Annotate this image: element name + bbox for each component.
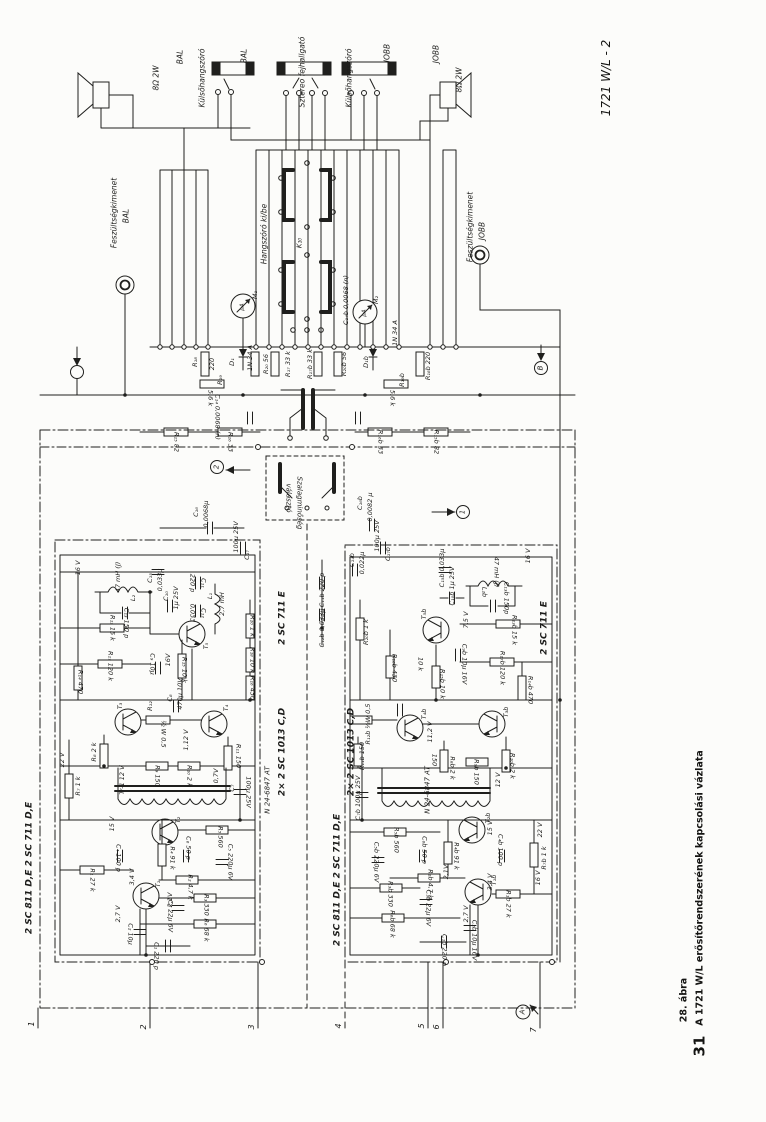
schematic-label: 2,7 mH xyxy=(219,592,226,616)
page-header-code: 1721 W/L - 2 xyxy=(600,40,614,117)
schematic-label: D₁ xyxy=(229,358,236,366)
schematic-label: C₄ 100 p xyxy=(115,844,122,872)
schematic-label: C₁₀b 1μ 25V xyxy=(449,567,456,606)
schematic-label: C₁₀ xyxy=(163,591,170,601)
schematic-label: R₁₂ xyxy=(147,701,154,711)
schematic-label: 1μ 25V xyxy=(173,586,180,609)
schematic-label: C₃b 22μ 6V xyxy=(425,890,432,926)
schematic-label: R₂₀ 56 xyxy=(263,354,270,374)
schematic-label: 2 SC 811 D,E 2 SC 711 D,E xyxy=(334,814,343,946)
schematic-label: 15 V xyxy=(109,817,116,832)
schematic-label: R₁₁ 150 xyxy=(235,744,242,768)
schematic-label: R₃b 330 xyxy=(387,881,394,907)
schematic-label: 22 V xyxy=(59,753,66,768)
schematic-label: C₈ xyxy=(167,694,174,701)
schematic-label: Feszültségkimenet xyxy=(110,178,118,249)
schematic-label: C₆ 50 p xyxy=(185,836,192,860)
schematic-label: 3,4 V xyxy=(129,869,136,886)
schematic-label: Feszültségkimenet xyxy=(466,192,474,263)
schematic-label: C₁₆ xyxy=(193,507,200,517)
schematic-label: R₉ 150 xyxy=(154,765,161,787)
schematic-label: C₁₄b xyxy=(349,553,356,567)
schematic-label: 47 mH (J) xyxy=(493,557,500,588)
schematic-label: C₅ 220μ 6V xyxy=(227,844,234,880)
schematic-label: C₅b 220μ 6V xyxy=(373,842,380,883)
schematic-label: R₁ 27 k xyxy=(89,868,96,891)
schematic-label: T₂ xyxy=(175,817,182,824)
schematic-label: R₁₅b 82 xyxy=(433,430,440,454)
schematic-label: R₈ 2 k xyxy=(91,742,98,761)
schematic-label: Sztereo fejhallgató xyxy=(298,37,306,108)
schematic-label: D₁b xyxy=(363,356,370,368)
schematic-label: L₁ xyxy=(207,593,214,599)
schematic-label: 11,2 V xyxy=(427,722,434,743)
schematic-label: 5,6 k xyxy=(389,390,396,406)
scanned-schematic-page: 8Ω 2WBALKülsőhangszóróBALSztereo fejhall… xyxy=(0,0,766,1122)
schematic-label: 8Ω 2W xyxy=(455,67,463,92)
schematic-label: R₁₃b 15 k xyxy=(511,615,518,645)
schematic-label: 12 V xyxy=(495,773,502,788)
schematic-label: R₂₀b 56 xyxy=(341,352,348,376)
schematic-label: 22 V xyxy=(537,823,544,838)
schematic-label: T₅b xyxy=(421,609,428,620)
schematic-label: 1,12 V xyxy=(183,730,190,751)
schematic-label: R₂₀b 1 k xyxy=(363,619,370,645)
schematic-label: BAL xyxy=(240,49,248,63)
figure-caption-text: A 1721 W/L erősítőrendszerének kapcsolás… xyxy=(696,750,707,1026)
schematic-label: R₁₈ 10 k xyxy=(249,647,256,673)
schematic-label: C₁₄ 0,0068 (n) xyxy=(214,394,221,440)
schematic-label: 16 V xyxy=(535,871,542,886)
schematic-label: 2 xyxy=(214,465,221,469)
schematic-label: JOBB xyxy=(383,44,391,62)
schematic-label: C₁₁ xyxy=(200,578,207,588)
schematic-label: 1N 34 A xyxy=(392,320,399,346)
schematic-label: BAL xyxy=(176,50,184,64)
schematic-label: 2 SC 711 E xyxy=(541,601,550,655)
schematic-label: Külsőhangszóró xyxy=(345,48,353,107)
schematic-label: R₃ 330 xyxy=(203,894,210,916)
schematic-label: R₄ 91 k xyxy=(169,846,176,869)
schematic-label: C₆b 50 p xyxy=(421,836,428,864)
schematic-label: C₁₂ xyxy=(200,608,207,618)
schematic-label: C₁₃b 150p xyxy=(503,582,510,614)
schematic-label: R₁₇ 33 k xyxy=(285,351,292,377)
schematic-label: R₁₂b ½W 0,5 xyxy=(365,703,372,744)
schematic-label: C₁₇ xyxy=(244,550,251,560)
schematic-label: R₁₈b 430 xyxy=(391,654,398,682)
schematic-label: C₁₄b 0,0068 (n) xyxy=(343,275,350,325)
schematic-label: T₅ xyxy=(203,643,210,650)
schematic-label: R₆ 68 k xyxy=(203,918,210,941)
schematic-label: 0,7V xyxy=(213,769,220,784)
schematic-label: R₅b 560 xyxy=(393,827,400,853)
schematic-label: 1N 34 A xyxy=(247,345,254,371)
schematic-label: C₁₇b xyxy=(385,547,392,561)
schematic-label: Hangszóró ki/be xyxy=(260,204,268,265)
schematic-label: R₁₅b 10 k xyxy=(439,669,446,699)
schematic-label: T₂b xyxy=(485,813,492,824)
schematic-label: C₃ 22μ 6V xyxy=(167,900,174,932)
schematic-label: 1 xyxy=(460,510,467,514)
schematic-label: R₁₉ xyxy=(217,375,224,385)
schematic-label: M₁ xyxy=(252,291,259,299)
schematic-label: BAL xyxy=(122,209,130,223)
schematic-label: R₁₃ 15 k xyxy=(109,615,116,641)
schematic-label: 100μ 25V xyxy=(245,776,252,807)
schematic-label: L₂b xyxy=(481,587,488,597)
schematic-label: 1 xyxy=(28,1021,36,1026)
schematic-label: C₁₂b 0,033μ xyxy=(319,609,326,648)
schematic-label: C₂b 10μ 16V xyxy=(471,920,478,961)
schematic-label: C₁₆b xyxy=(357,496,364,510)
schematic-label: N 24-6847 AT xyxy=(425,766,432,814)
schematic-label: 8Ω 2W xyxy=(152,65,160,90)
schematic-label: M₂ xyxy=(373,296,380,304)
schematic-label: R₂₀ 1 k xyxy=(249,615,256,637)
schematic-label: C₁₅b 0,033μ xyxy=(439,549,446,588)
schematic-label: R₁₅ 82 xyxy=(173,432,180,452)
schematic-label: 10 k xyxy=(417,657,424,671)
schematic-label: C₉b 10μ 16V xyxy=(461,644,468,685)
schematic-label: R₇ 1 k xyxy=(75,776,82,795)
schematic-label: R₈b 2 k xyxy=(449,756,456,779)
schematic-label: 100μ 25V xyxy=(374,520,381,551)
schematic-label: R₆b 68 k xyxy=(389,910,396,937)
schematic-label: C₁₃ 150 p xyxy=(123,608,130,638)
schematic-label: R₁₁b 150 xyxy=(359,742,366,770)
schematic-label: R₁₈b 220 xyxy=(425,352,432,380)
schematic-label: R₁₇b 33 k xyxy=(307,349,314,379)
schematic-label: Szalagminőség xyxy=(296,477,303,530)
schematic-label: 3 xyxy=(248,1024,256,1029)
schematic-label: μA xyxy=(362,309,368,316)
schematic-label: ½ W 0,5 xyxy=(160,720,167,747)
schematic-label: K₁₀ xyxy=(297,238,304,248)
schematic-label: 2 xyxy=(140,1024,148,1029)
schematic-label: R₁₆ 33 xyxy=(227,432,234,452)
schematic-label: R₅ 560 xyxy=(217,826,224,848)
schematic-label: N 24-6847 AT xyxy=(265,766,272,814)
schematic-label: választó xyxy=(285,483,292,512)
schematic-label: T₄b xyxy=(421,709,428,720)
schematic-label: C₇ xyxy=(229,784,236,791)
schematic-label: R₄b 91 k xyxy=(453,842,460,869)
schematic-label: R₇b 1 k xyxy=(541,846,548,869)
page-number: 31 xyxy=(691,1036,708,1057)
schematic-label: 2 SC 811 D,E 2 SC 711 D,E xyxy=(26,802,35,934)
schematic-label: 0,0082 μ xyxy=(367,493,374,522)
schematic-label: 0,0068μ xyxy=(203,501,210,528)
schematic-label: 4 xyxy=(335,1023,343,1028)
schematic-label: R₂ 4,7 k xyxy=(187,874,194,899)
schematic-label: 2 SC 711 E xyxy=(279,591,288,645)
schematic-label: 2,1V xyxy=(443,865,450,880)
schematic-label: 6 xyxy=(433,1024,441,1029)
schematic-label: C₂ 10μ xyxy=(127,923,134,945)
schematic-label: C₁₅ xyxy=(147,573,154,583)
schematic-label: R₁₆ 430 xyxy=(249,676,256,700)
schematic-label: 7,5 V xyxy=(463,612,470,629)
schematic-label: 0,033 xyxy=(189,604,196,623)
schematic-label: T₁b xyxy=(491,875,498,886)
schematic-label: T₁ xyxy=(155,881,162,888)
schematic-label: 2× 2 SC 1013 C,D xyxy=(279,708,288,796)
schematic-label: R₁₉b xyxy=(399,373,406,387)
schematic-label: 0,033μ xyxy=(157,569,164,592)
schematic-label: C₉ 10μ xyxy=(149,653,156,675)
schematic-label: R₁₀ 2 k xyxy=(186,765,193,787)
schematic-label: R₁₇b 120 k xyxy=(499,651,506,685)
schematic-label: Tr-1 12 V xyxy=(119,765,126,794)
schematic-label: 16 V xyxy=(75,561,82,576)
schematic-label: T₄ xyxy=(223,705,230,712)
schematic-label: 2,7 V xyxy=(463,906,470,923)
schematic-label: T₃b xyxy=(503,707,510,718)
schematic-label: JOBB xyxy=(478,222,486,240)
schematic-label: R₁₇ 120 k xyxy=(107,651,114,681)
schematic-label: R₁₆b 33 xyxy=(377,430,384,454)
schematic-label: 150 xyxy=(431,754,438,766)
schematic-label: 16 V xyxy=(525,549,532,564)
schematic-label: R₁₈ xyxy=(192,357,199,367)
schematic-label: 100μ 25V xyxy=(233,521,240,552)
schematic-label: R₁₄b 470 xyxy=(527,676,534,704)
schematic-label: 220 p xyxy=(189,574,196,593)
schematic-label: 220 xyxy=(209,358,216,370)
schematic-label: R₁₀b 2 k xyxy=(509,753,516,779)
schematic-label: C₁ 220 p xyxy=(153,942,160,970)
schematic-label: C₄b 100 p xyxy=(497,834,504,866)
schematic-label: Külsőhangszóró xyxy=(198,48,206,107)
schematic-label: R₉b 150 xyxy=(473,759,480,785)
schematic-label: L₂ xyxy=(130,595,137,601)
schematic-label: A xyxy=(520,1010,527,1015)
figure-caption-number: 28. ábra xyxy=(680,978,691,1022)
schematic-label: 47 mH (J) xyxy=(115,562,122,593)
schematic-label: 16V xyxy=(165,654,172,667)
schematic-label: R₁₄ 470 xyxy=(77,670,84,694)
schematic-label: 2,7 V xyxy=(115,906,122,923)
schematic-label: T₃ xyxy=(117,703,124,710)
schematic-label: B xyxy=(538,366,545,371)
schematic-label: 0,022μ xyxy=(359,552,366,575)
schematic-label: C₁b 220 p xyxy=(441,934,448,966)
schematic-label: C₁₁b 220 p xyxy=(319,573,326,608)
schematic-label: μA xyxy=(240,303,246,310)
schematic-label: C₇b 100μ 25V xyxy=(355,776,362,821)
schematic-label: 5 xyxy=(418,1023,426,1028)
schematic-label: 470μ 10V xyxy=(177,678,184,709)
schematic-label: JOBB xyxy=(432,45,440,63)
schematic-label: 7 xyxy=(530,1027,538,1032)
schematic-label: R₁b 27 k xyxy=(505,890,512,917)
